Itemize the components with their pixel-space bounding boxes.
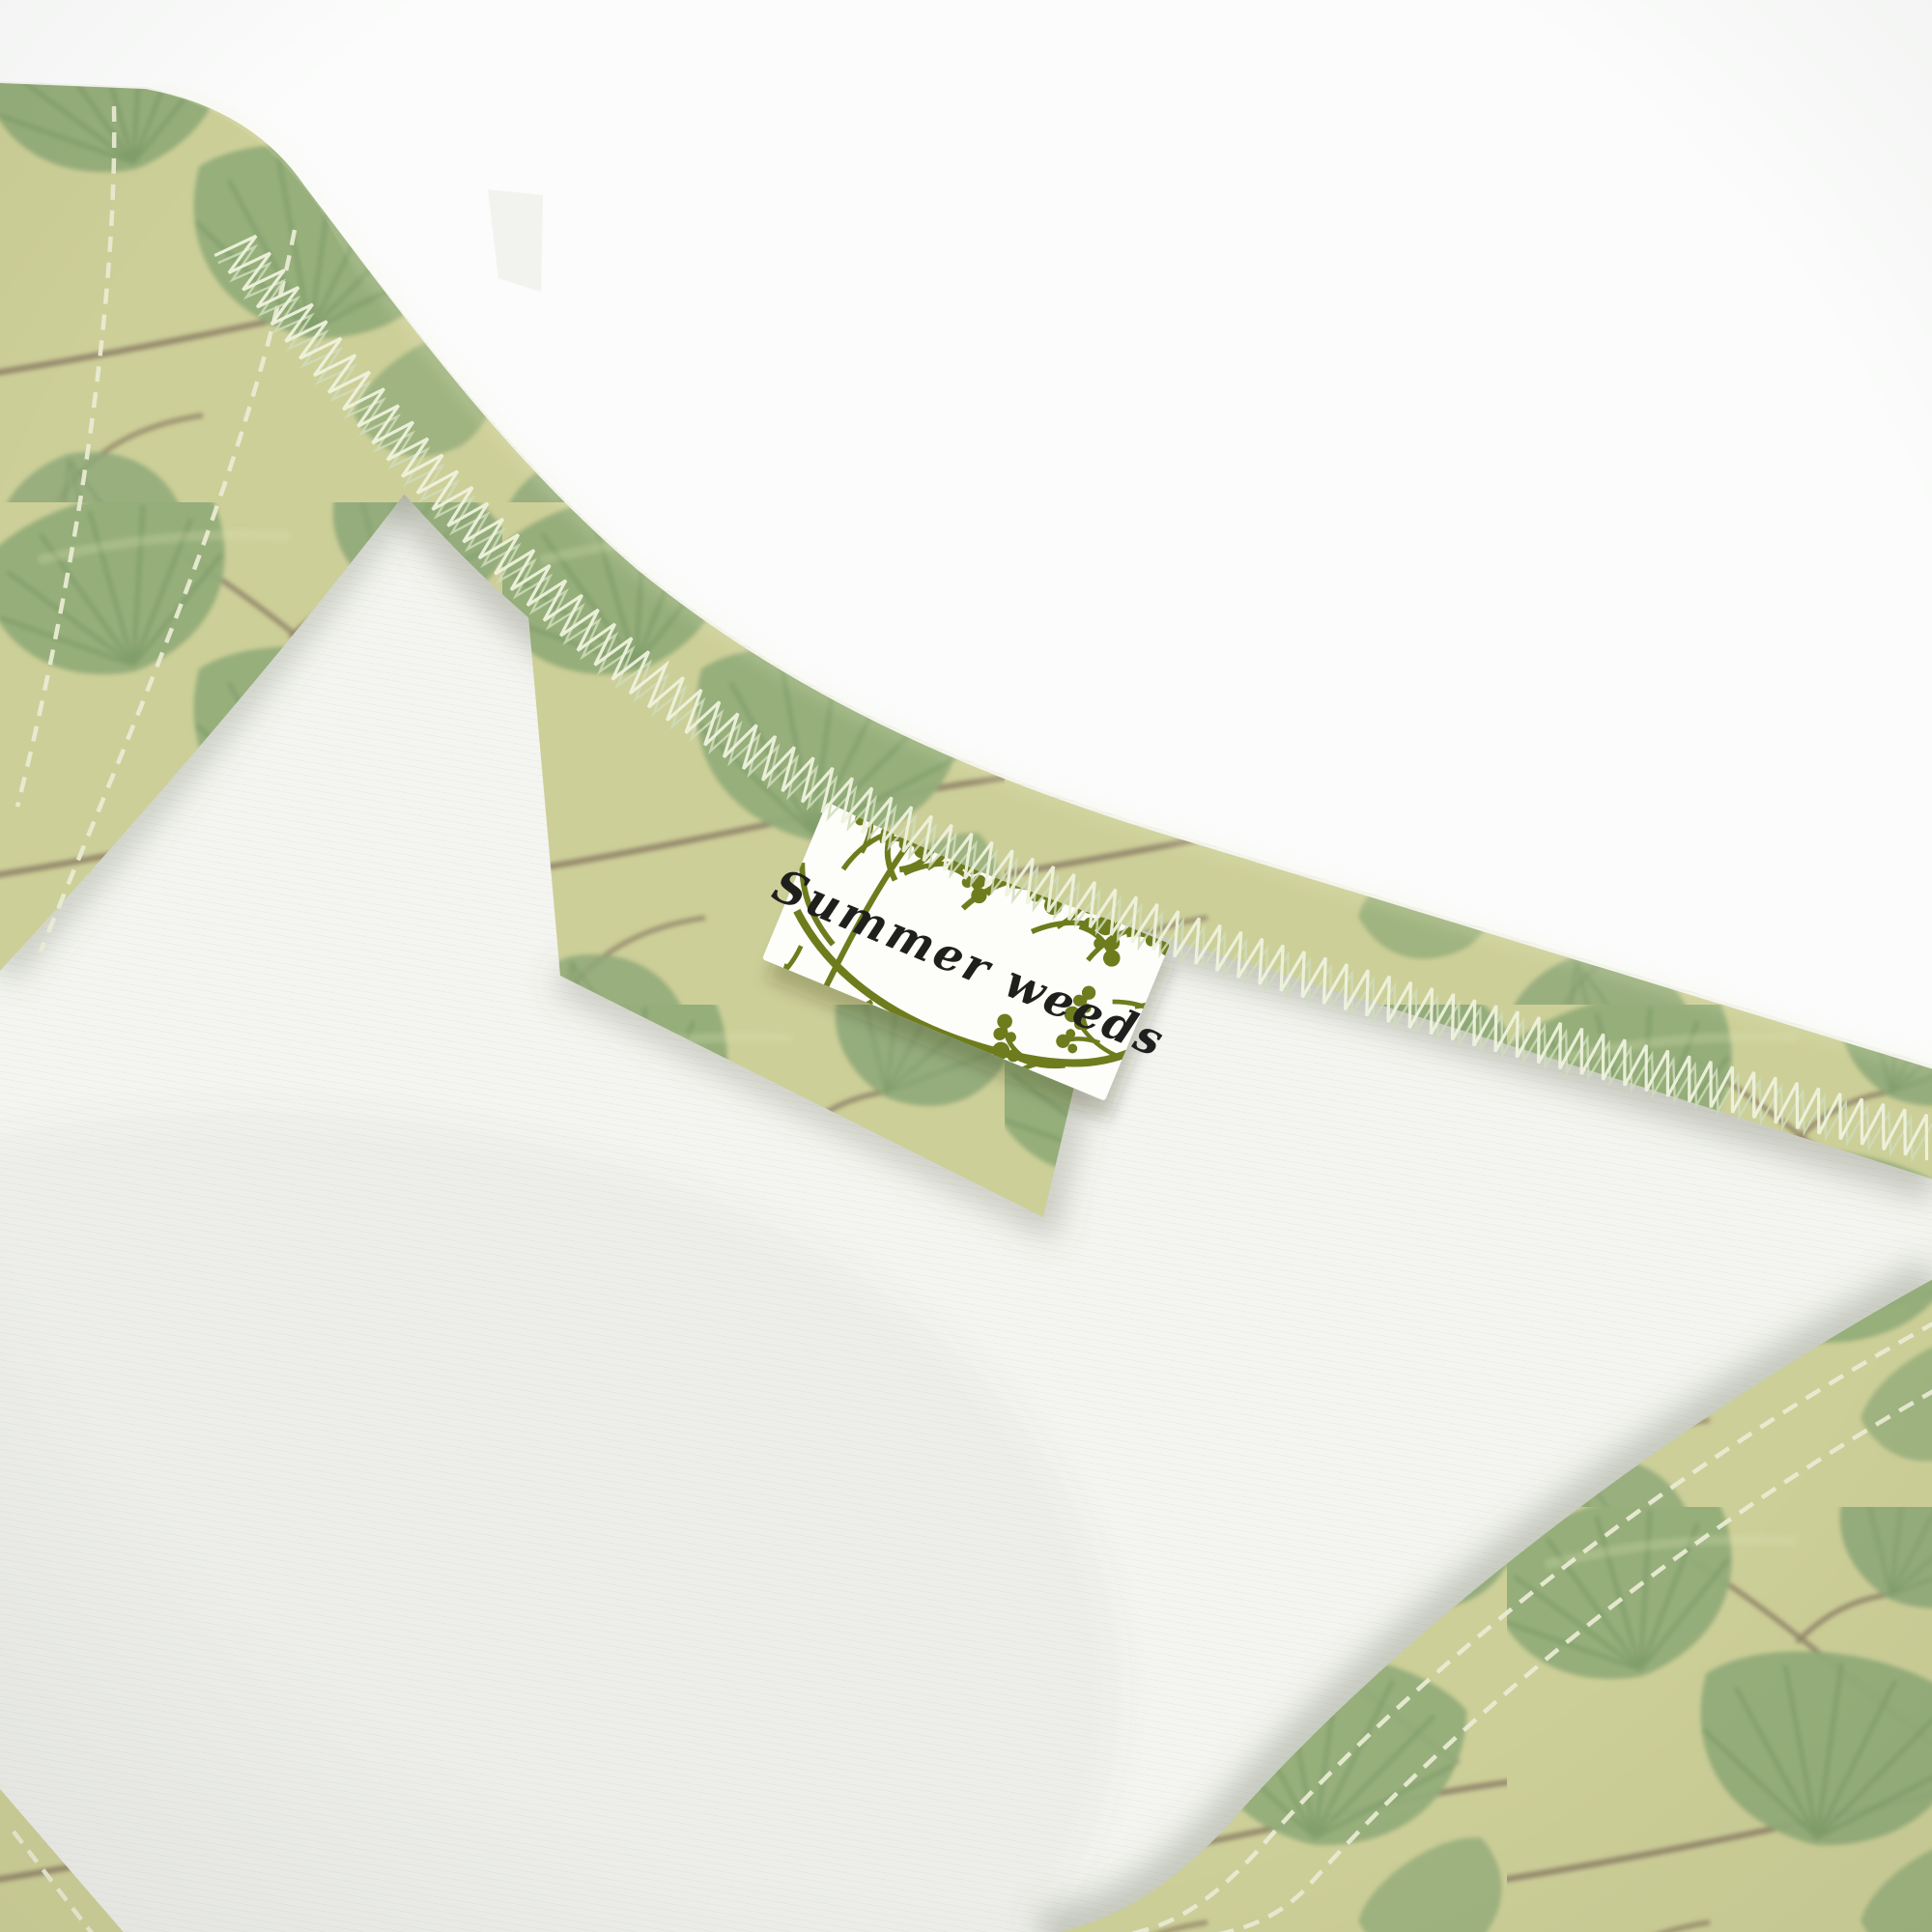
garment-photo-canvas: Summer weeds: [0, 0, 1932, 1932]
product-photo: Summer weeds: [0, 0, 1932, 1932]
photo-vignette: [0, 0, 1932, 1932]
